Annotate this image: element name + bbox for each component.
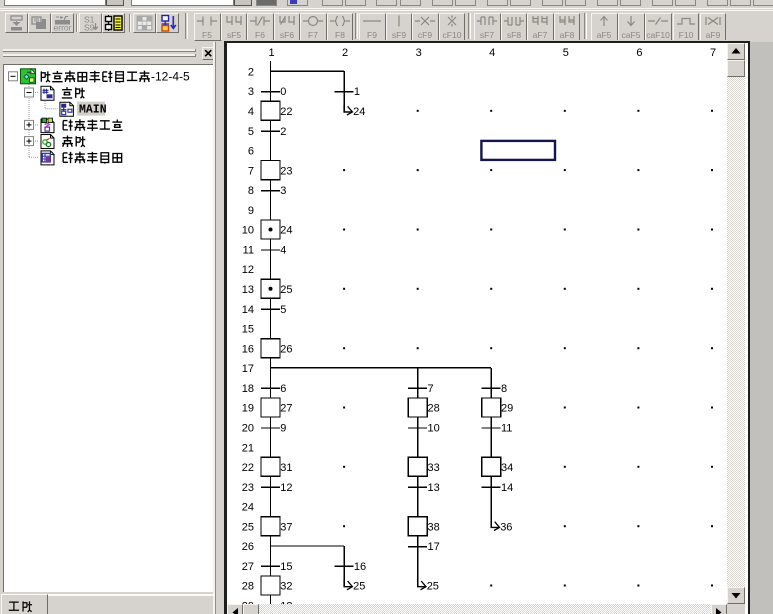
svg-text:25: 25 — [241, 521, 253, 533]
svg-text:1: 1 — [268, 47, 274, 59]
svg-text:17: 17 — [241, 363, 253, 375]
svg-text:aF7: aF7 — [533, 30, 548, 40]
svg-text:7: 7 — [247, 165, 253, 177]
svg-text:26: 26 — [280, 343, 292, 355]
svg-text:6: 6 — [280, 383, 286, 395]
svg-text:25: 25 — [280, 284, 292, 296]
svg-text:16: 16 — [241, 343, 253, 355]
svg-text:10: 10 — [241, 225, 253, 237]
svg-text:sF6: sF6 — [280, 30, 294, 40]
svg-text:-12-4-5: -12-4-5 — [151, 69, 190, 83]
svg-text:24: 24 — [353, 106, 365, 118]
svg-text:38: 38 — [427, 521, 439, 533]
svg-text:6: 6 — [247, 146, 253, 158]
svg-text:1: 1 — [353, 86, 359, 98]
svg-text:26: 26 — [241, 541, 253, 553]
svg-text:12: 12 — [241, 264, 253, 276]
svg-text:10: 10 — [427, 423, 439, 435]
svg-text:4: 4 — [280, 245, 286, 257]
svg-text:36: 36 — [500, 521, 512, 533]
svg-text:11: 11 — [501, 423, 512, 435]
svg-text:16: 16 — [353, 561, 365, 573]
svg-text:23: 23 — [280, 165, 292, 177]
svg-text:27: 27 — [280, 403, 292, 415]
svg-text:20: 20 — [241, 423, 253, 435]
svg-text:14: 14 — [501, 482, 513, 494]
svg-text:sF8: sF8 — [507, 30, 521, 40]
svg-text:0: 0 — [280, 86, 286, 98]
svg-text:F10: F10 — [678, 30, 693, 40]
svg-text:2: 2 — [280, 126, 286, 138]
svg-text:17: 17 — [427, 541, 439, 553]
svg-text:F6: F6 — [255, 30, 265, 40]
svg-text:F7: F7 — [308, 30, 318, 40]
svg-text:25: 25 — [426, 581, 438, 593]
svg-text:11: 11 — [242, 245, 253, 257]
svg-text:37: 37 — [280, 521, 292, 533]
svg-text:caF5: caF5 — [622, 30, 641, 40]
svg-text:cF9: cF9 — [418, 30, 432, 40]
svg-text:F5: F5 — [202, 30, 212, 40]
svg-text:7: 7 — [427, 383, 433, 395]
svg-text:7: 7 — [709, 47, 715, 59]
svg-text:8: 8 — [247, 185, 253, 197]
svg-text:3: 3 — [280, 185, 286, 197]
svg-text:15: 15 — [241, 324, 253, 336]
svg-text:12: 12 — [280, 482, 292, 494]
svg-text:18: 18 — [241, 383, 253, 395]
svg-text:9: 9 — [247, 205, 253, 217]
svg-text:28: 28 — [427, 403, 439, 415]
svg-text:6: 6 — [636, 47, 642, 59]
svg-text:29: 29 — [501, 403, 513, 415]
svg-text:2: 2 — [247, 66, 253, 78]
svg-text:aF9: aF9 — [705, 30, 720, 40]
svg-text:23: 23 — [241, 482, 253, 494]
svg-text:28: 28 — [241, 581, 253, 593]
svg-text:25: 25 — [353, 581, 365, 593]
svg-text:F9: F9 — [367, 30, 377, 40]
svg-text:34: 34 — [501, 462, 513, 474]
svg-text:27: 27 — [241, 561, 253, 573]
svg-text:21: 21 — [241, 442, 253, 454]
svg-text:9: 9 — [280, 423, 286, 435]
svg-text:4: 4 — [247, 106, 253, 118]
svg-text:sF9: sF9 — [392, 30, 406, 40]
svg-text:3: 3 — [415, 47, 421, 59]
svg-text:4: 4 — [489, 47, 495, 59]
svg-text:33: 33 — [427, 462, 439, 474]
svg-text:F8: F8 — [335, 30, 345, 40]
svg-text:24: 24 — [280, 225, 292, 237]
svg-text:19: 19 — [241, 403, 253, 415]
svg-text:5: 5 — [562, 47, 568, 59]
svg-text:15: 15 — [280, 561, 292, 573]
svg-text:caF10: caF10 — [647, 30, 671, 40]
svg-text:5: 5 — [280, 304, 286, 316]
svg-text:sF7: sF7 — [480, 30, 494, 40]
svg-text:31: 31 — [280, 462, 292, 474]
svg-text:22: 22 — [280, 106, 292, 118]
svg-text:14: 14 — [241, 304, 253, 316]
svg-text:22: 22 — [241, 462, 253, 474]
svg-text:aF8: aF8 — [559, 30, 574, 40]
svg-text:13: 13 — [241, 284, 253, 296]
svg-text:MAIN: MAIN — [79, 104, 107, 117]
svg-text:32: 32 — [280, 581, 292, 593]
svg-text:error: error — [54, 23, 72, 33]
svg-text:13: 13 — [427, 482, 439, 494]
svg-text:cF10: cF10 — [442, 30, 461, 40]
svg-text:5: 5 — [247, 126, 253, 138]
svg-text:8: 8 — [501, 383, 507, 395]
svg-text:sF5: sF5 — [227, 30, 241, 40]
svg-text:3: 3 — [247, 86, 253, 98]
svg-text:24: 24 — [241, 502, 253, 514]
svg-text:2: 2 — [342, 47, 348, 59]
svg-text:aF5: aF5 — [597, 30, 612, 40]
